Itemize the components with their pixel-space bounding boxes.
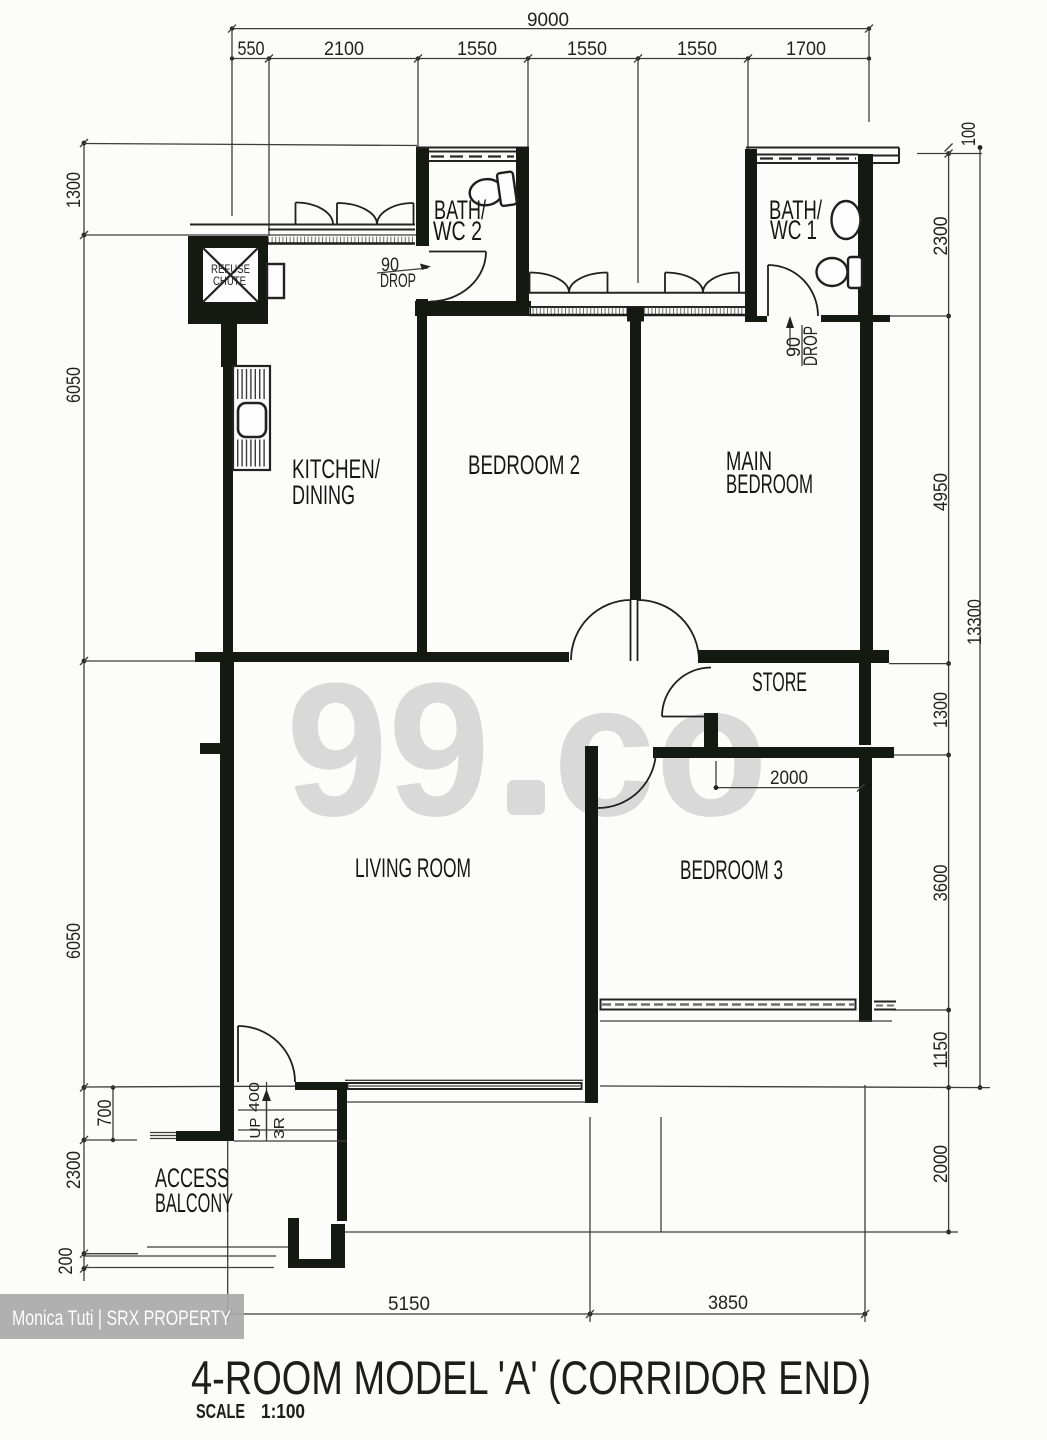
svg-text:DROP: DROP — [801, 326, 822, 366]
svg-text:LIVING ROOM: LIVING ROOM — [355, 853, 471, 883]
svg-text:2300: 2300 — [931, 217, 952, 256]
svg-text:6050: 6050 — [64, 923, 85, 959]
svg-text:CHUTE: CHUTE — [213, 274, 246, 288]
svg-text:1550: 1550 — [457, 39, 497, 60]
svg-text:4-ROOM MODEL 'A' (CORRIDOR END: 4-ROOM MODEL 'A' (CORRIDOR END) — [191, 1351, 871, 1404]
svg-text:5150: 5150 — [388, 1294, 430, 1315]
svg-text:1550: 1550 — [567, 39, 607, 60]
svg-text:2000: 2000 — [931, 1145, 952, 1183]
svg-text:BEDROOM: BEDROOM — [726, 469, 813, 499]
svg-text:WC 1: WC 1 — [770, 215, 817, 245]
svg-text:BALCONY: BALCONY — [155, 1188, 233, 1218]
svg-text:3850: 3850 — [708, 1293, 748, 1314]
svg-text:99: 99 — [286, 644, 490, 856]
svg-text:3R: 3R — [271, 1117, 288, 1139]
svg-text:STORE: STORE — [752, 667, 807, 697]
svg-text:100: 100 — [959, 122, 980, 146]
svg-text:BEDROOM 3: BEDROOM 3 — [680, 855, 783, 885]
svg-text:1700: 1700 — [786, 39, 826, 60]
svg-text:UP: UP — [247, 1118, 264, 1139]
svg-text:550: 550 — [238, 39, 265, 60]
svg-text:2300: 2300 — [64, 1151, 85, 1189]
svg-text:WC 2: WC 2 — [433, 216, 482, 246]
svg-text:1300: 1300 — [64, 172, 85, 208]
svg-text:1550: 1550 — [677, 39, 717, 60]
svg-text:400: 400 — [246, 1082, 263, 1112]
svg-text:SCALE: SCALE — [196, 1401, 245, 1423]
svg-text:3600: 3600 — [931, 865, 952, 902]
svg-text:DINING: DINING — [292, 480, 355, 510]
svg-text:1150: 1150 — [931, 1032, 952, 1069]
svg-text:4950: 4950 — [931, 473, 952, 511]
svg-text:BEDROOM 2: BEDROOM 2 — [468, 450, 580, 480]
svg-text:6050: 6050 — [64, 367, 85, 403]
svg-text:13300: 13300 — [965, 599, 986, 645]
svg-text:2000: 2000 — [770, 768, 808, 789]
svg-text:2100: 2100 — [324, 39, 364, 60]
svg-text:1:100: 1:100 — [261, 1401, 305, 1423]
svg-text:200: 200 — [56, 1248, 77, 1275]
svg-text:1300: 1300 — [931, 692, 952, 728]
svg-text:9000: 9000 — [527, 10, 569, 31]
svg-text:DROP: DROP — [380, 271, 416, 292]
svg-text:Monica Tuti | SRX PROPERTY: Monica Tuti | SRX PROPERTY — [12, 1307, 231, 1330]
